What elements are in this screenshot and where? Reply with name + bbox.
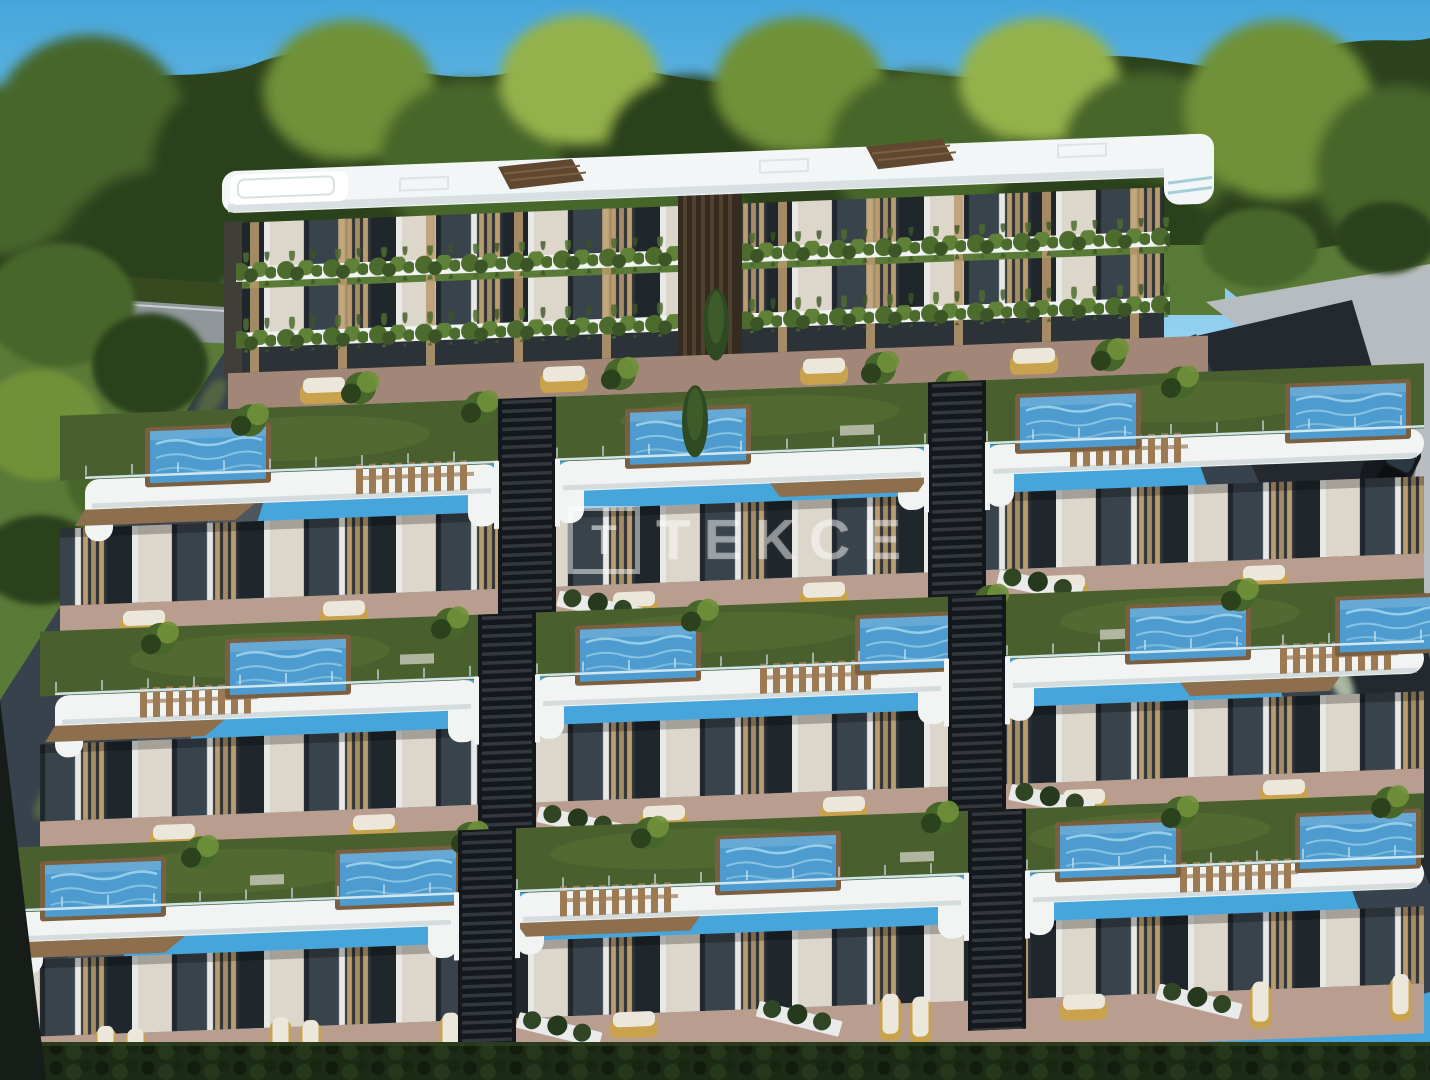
rendering-stage: T TEKCE: [0, 0, 1430, 1080]
rooftop-pool: [335, 845, 461, 910]
rooftop-pool: [40, 857, 166, 922]
rooftop-pool: [1015, 389, 1141, 454]
stairs: [474, 612, 540, 835]
stairs: [454, 828, 520, 1051]
stairs: [944, 594, 1010, 817]
roof-end-cap: [1164, 133, 1214, 205]
rooftop-pool: [1335, 592, 1430, 657]
stairs: [964, 808, 1030, 1031]
bottom-hedge: [0, 1042, 1430, 1080]
rooftop-pool: [575, 621, 701, 686]
rooftop-pool: [1285, 379, 1411, 444]
top-building: [222, 128, 1214, 409]
scene-rendering: [0, 0, 1430, 1080]
rooftop-pool: [225, 635, 351, 700]
stairs: [494, 396, 560, 619]
stairs: [924, 380, 990, 603]
rooftop-pool: [715, 831, 841, 896]
rooftop-pool: [1295, 808, 1421, 873]
rooftop-pool: [1055, 818, 1181, 883]
